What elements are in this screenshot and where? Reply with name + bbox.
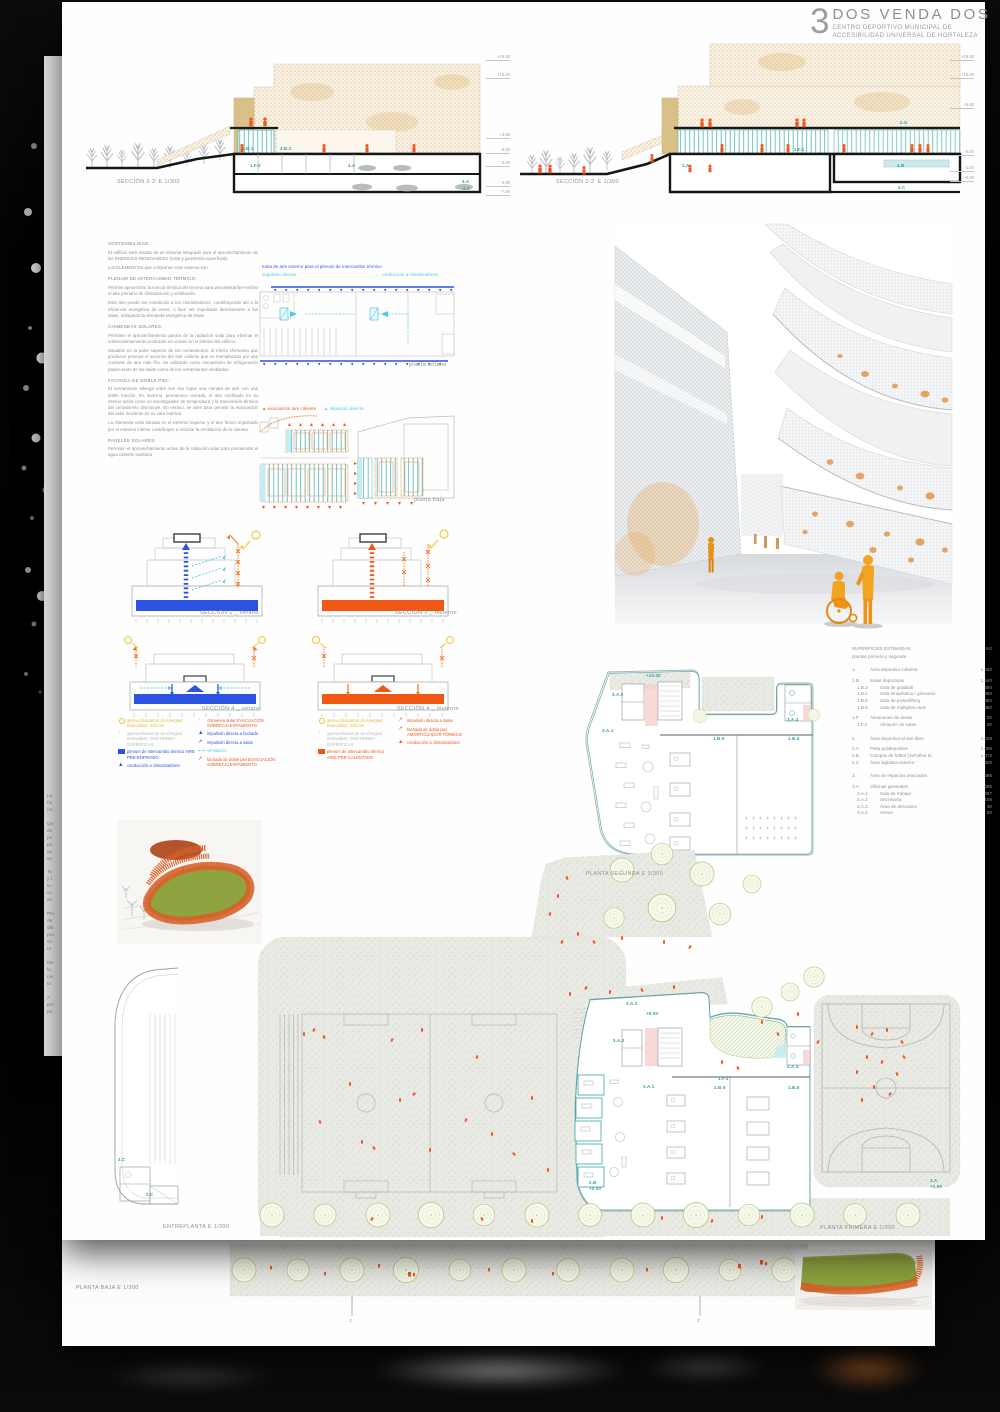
diagram-planta-sotano	[260, 287, 454, 366]
areas-table-subtitle: plantas primera y segunda	[852, 654, 992, 661]
room-tag: 3.B.2	[280, 146, 292, 152]
planta-primera-label: PLANTA PRIMERA E 1/300	[820, 1225, 895, 1231]
table-row: 3.A.4Aseos60	[852, 810, 992, 817]
double-skin-arrow-icon	[198, 757, 206, 763]
table-row: 1.F.3Almacén de salas20	[852, 722, 992, 729]
room-supply-arrow-icon	[398, 718, 406, 724]
note-direct-supply: impulsión directa	[262, 272, 296, 277]
sustainability-text: SOSTENIBILIDAD El edificio está dotado d…	[108, 236, 258, 462]
project-title-block: 3 DOS VENDA DOS CENTRO DEPORTIVO MUNICIP…	[810, 6, 960, 39]
model-photo-2	[795, 1250, 932, 1310]
table-row: 1.Área deportiva cubierta1.440	[852, 667, 992, 674]
level-mark: +3.50	[486, 132, 510, 139]
duct-arrow-icon	[118, 763, 126, 769]
areas-table-title: SUPERFICIES ESTIMADAS	[852, 646, 910, 653]
table-row: 3.A.1Sala de trabajo497	[852, 791, 992, 798]
plan-entreplanta	[115, 968, 178, 1204]
planta-segunda-label: PLANTA SEGUNDA E 1/300	[586, 871, 663, 877]
room-tag: 3.A.1	[643, 1084, 655, 1090]
table-row: 2.BCampos de fútbol (3xFútbol 5)1.072	[852, 753, 992, 760]
panel-number: 3	[810, 6, 829, 38]
room-tag: 1.B.5	[713, 736, 725, 742]
grid-tick-1: 1'	[349, 1318, 352, 1323]
table-row: 2.APista polideportiva1.056	[852, 746, 992, 753]
table-reflection-orange	[810, 1346, 925, 1390]
level-mark: +5.60	[950, 102, 974, 109]
sun-icon	[318, 718, 326, 724]
room-tag: 1.B.6	[788, 736, 800, 742]
project-subtitle-2: ACCESIBILIDAD UNIVERSAL DE HORTALEZA	[832, 32, 990, 39]
room-tag: 3.A.2	[613, 1038, 625, 1044]
note-hot-air-exhaust: ▲ evacuación aire caliente	[262, 406, 316, 411]
legend-summer-col2: chimenea solar EVACUACIÓN SOBRECALENTAMI…	[198, 718, 278, 767]
planta-baja-strip-drawing	[62, 1238, 935, 1346]
project-subtitle-1: CENTRO DEPORTIVO MUNICIPAL DE	[832, 24, 990, 31]
geothermal-arrow-icon	[318, 731, 326, 737]
seccion1-verano-label: SECCIÓN 1 _ verano	[200, 610, 259, 616]
main-presentation-board: 3 DOS VENDA DOS CENTRO DEPORTIVO MUNICIP…	[62, 2, 985, 1240]
room-tag: 1.F.3	[718, 1076, 729, 1082]
level-mark: -3.00	[486, 160, 510, 167]
level-mark: -0.00	[486, 147, 510, 154]
table-row: 3.AOficinas generales695	[852, 784, 992, 791]
room-tag: 1.B.6	[788, 1085, 800, 1091]
legend-winter-col2: impulsión directa a salas fachada de dob…	[398, 718, 478, 746]
diagram-seccion4-verano	[125, 637, 266, 718]
plenum-swatch-icon	[318, 749, 326, 755]
planta-sotano-label: planta sótano	[409, 362, 447, 368]
seccion4-verano-label: SECCIÓN 4 _ verano	[202, 706, 261, 712]
table-reflection-dim	[100, 1362, 280, 1390]
areas-table-unit: m2	[986, 646, 992, 653]
court-tag: 2.A +1.50	[930, 1178, 942, 1189]
double-skin-arrow-icon	[398, 727, 406, 733]
room-tag: 4.A	[462, 179, 469, 185]
table-reflection-dim2	[640, 1352, 770, 1380]
room-tag: 2.G	[900, 120, 908, 126]
level-mark: +19.50	[950, 54, 974, 61]
photo-of-presentation-boards: La hu no Qu de pe po qu se To y l la cu …	[0, 0, 1000, 1412]
table-row: 3.Área de espacios asociados695	[852, 773, 992, 780]
legend-summer-col1: aprovechamiento de energías renovables: …	[118, 718, 196, 769]
grid-tick-2: 2'	[697, 1318, 700, 1323]
lower-sheet-planta-baja: PLANTA BAJA E 1/300 1' 2'	[62, 1238, 935, 1346]
table-row: 2.CÁrea logística exterior900	[852, 760, 992, 767]
note-to-ahu: ← conducción a climatizadores	[376, 272, 438, 277]
room-tag: 3.A.4	[787, 717, 799, 723]
board-artwork	[62, 2, 985, 1240]
level-tag: +10.00	[646, 673, 661, 679]
note-air-intake: toma de aire exterior para el plenum de …	[262, 264, 382, 269]
room-tag: 3.A.2	[612, 692, 624, 698]
table-row: 1.FAlmacenes de áreas20	[852, 715, 992, 722]
section-3-3-label: SECCIÓN 3-3' E 1/300	[117, 179, 180, 185]
ventilation-line-icon	[198, 748, 206, 754]
project-title: DOS VENDA DOS	[832, 6, 990, 23]
room-tag: 2.C	[118, 1157, 125, 1163]
plan-planta-segunda	[586, 670, 820, 855]
note-direct-supply-2: ▲ impulsión directa	[324, 406, 364, 411]
room-tag: 1.B.5	[714, 1085, 726, 1091]
table-reflection	[370, 1350, 630, 1388]
solar-chimney-icon	[198, 718, 206, 724]
level-mark: +19.50	[486, 54, 510, 61]
court-tag: 2.B +0.00	[589, 1180, 601, 1191]
table-row: 1.B.3Sala de goalball360	[852, 685, 992, 692]
render-perspective	[615, 224, 952, 629]
level-mark: -1.00	[950, 165, 974, 172]
level-tag: +5.00	[646, 1011, 658, 1017]
table-row: 1.BSalas deportivas1.440	[852, 678, 992, 685]
room-tag: 4.C	[898, 185, 905, 191]
table-row: 3.A.3Área de descanso30	[852, 804, 992, 811]
room-tag: 1.A	[682, 163, 689, 169]
level-mark: -5.00	[950, 175, 974, 182]
entreplanta-label: ENTREPLANTA E 1/300	[163, 1224, 229, 1230]
room-tag: 3.A.3	[626, 1001, 638, 1007]
seccion4-invierno-label: SECCIÓN 4 _ invierno	[397, 706, 459, 712]
sun-icon	[118, 718, 126, 724]
level-mark: -7.00	[486, 189, 510, 196]
room-tag: 3.A.1	[602, 728, 614, 734]
diagram-planta-baja	[260, 416, 454, 509]
table-row: 1.B.5Sala de powerlifting360	[852, 698, 992, 705]
table-row: 2.Área deportiva al aire libre3.028	[852, 736, 992, 743]
seccion1-invierno-label: SECCIÓN 1 _ invierno	[395, 610, 457, 616]
room-tag: 4.C	[463, 186, 470, 192]
section-2-2-drawing	[520, 44, 960, 192]
table-row: 1.B.6Sala de múltiples usos360	[852, 705, 992, 712]
plan-planta-primera-building	[575, 992, 810, 1211]
table-row: 3.A.2Secretaría108	[852, 797, 992, 804]
model-photo-1	[118, 820, 262, 944]
duct-arrow-icon	[398, 740, 406, 746]
geothermal-arrow-icon	[118, 731, 126, 737]
section-2-2-label: SECCIÓN 2-2' E 1/300	[556, 179, 619, 185]
clipped-paragraph-fragments: La hu no Qu de pe po qu se To y l la cu …	[47, 794, 62, 1017]
level-mark: +15.00	[950, 72, 974, 79]
level-mark: -0.00	[950, 149, 974, 156]
room-supply-arrow-icon	[198, 740, 206, 746]
planta-baja-label: PLANTA BAJA E 1/300	[76, 1285, 139, 1291]
areas-table: SUPERFICIES ESTIMADASm2 plantas primera …	[852, 646, 992, 817]
plenum-swatch-icon	[118, 749, 126, 755]
planta-baja-diagram-label: planta baja	[414, 497, 445, 503]
room-tag: 3.A.4	[787, 1064, 799, 1070]
room-tag: 4.A	[348, 163, 355, 169]
room-tag: 3.C	[146, 1192, 153, 1198]
level-mark: -4.00	[486, 180, 510, 187]
room-tag: 4.B	[897, 163, 904, 169]
facade-supply-arrow-icon	[198, 731, 206, 737]
room-tag: 1.F.1	[794, 147, 805, 153]
legend-winter-col1: aprovechamiento de energías renovables: …	[318, 718, 394, 760]
room-tag: 1.F.3	[250, 163, 261, 169]
diagram-seccion4-invierno	[313, 637, 454, 718]
room-tag: 3.B.1	[242, 146, 254, 152]
level-mark: +15.20	[486, 72, 510, 79]
section-3-3-drawing	[86, 64, 480, 192]
table-row: 1.B.4Sala terapéutica / gimnasio360	[852, 691, 992, 698]
